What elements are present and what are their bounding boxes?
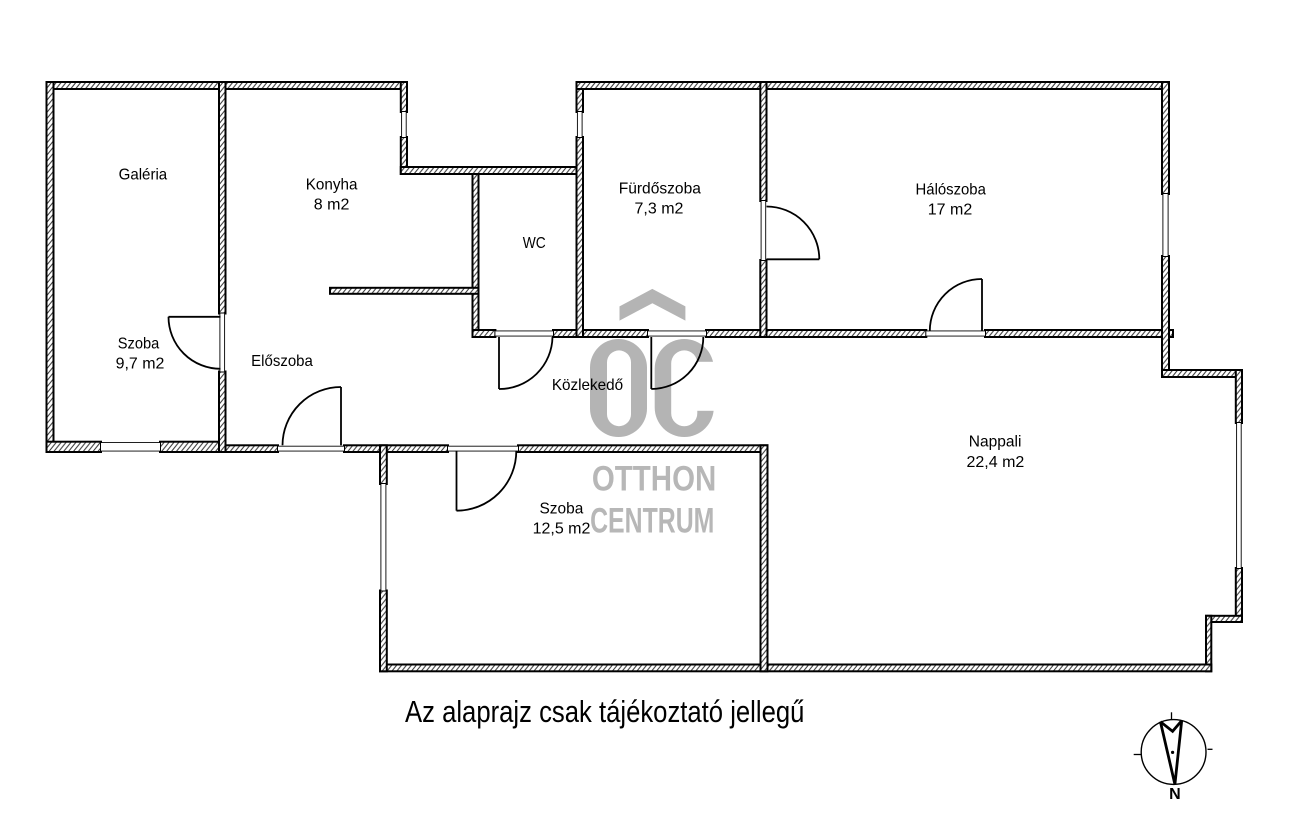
- svg-text:Szoba: Szoba: [118, 336, 160, 353]
- svg-text:Az alaprajz csak tájékoztató j: Az alaprajz csak tájékoztató jellegű: [405, 694, 804, 729]
- svg-text:WC: WC: [523, 235, 546, 252]
- svg-text:Konyha: Konyha: [306, 176, 358, 193]
- svg-text:CENTRUM: CENTRUM: [590, 501, 714, 540]
- svg-text:8 m2: 8 m2: [314, 196, 350, 213]
- svg-text:Előszoba: Előszoba: [251, 353, 313, 370]
- svg-text:22,4 m2: 22,4 m2: [966, 454, 1024, 471]
- svg-text:12,5 m2: 12,5 m2: [533, 521, 591, 538]
- svg-text:Szoba: Szoba: [540, 501, 584, 518]
- svg-text:Nappali: Nappali: [969, 434, 1022, 451]
- svg-text:7,3 m2: 7,3 m2: [635, 201, 684, 218]
- svg-text:17 m2: 17 m2: [928, 202, 973, 219]
- svg-text:Galéria: Galéria: [119, 167, 168, 184]
- svg-text:Fürdőszoba: Fürdőszoba: [619, 181, 701, 198]
- svg-text:Közlekedő: Közlekedő: [552, 377, 623, 394]
- svg-text:9,7 m2: 9,7 m2: [116, 356, 165, 373]
- svg-text:OTTHON: OTTHON: [592, 459, 716, 498]
- svg-text:Hálószoba: Hálószoba: [916, 182, 986, 199]
- svg-text:N: N: [1169, 786, 1181, 803]
